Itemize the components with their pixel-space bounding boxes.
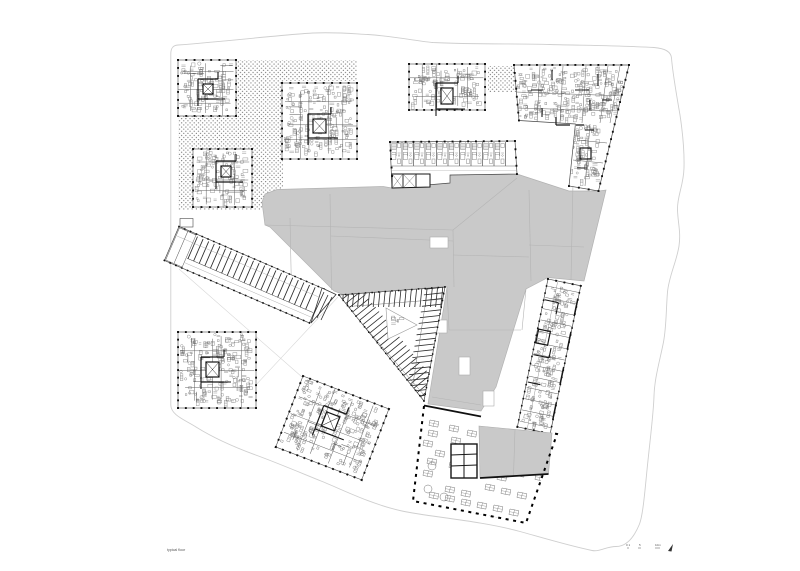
svg-text:typical floor: typical floor xyxy=(167,548,186,552)
svg-text:10m: 10m xyxy=(655,543,661,547)
svg-text:0 1: 0 1 xyxy=(626,543,631,547)
